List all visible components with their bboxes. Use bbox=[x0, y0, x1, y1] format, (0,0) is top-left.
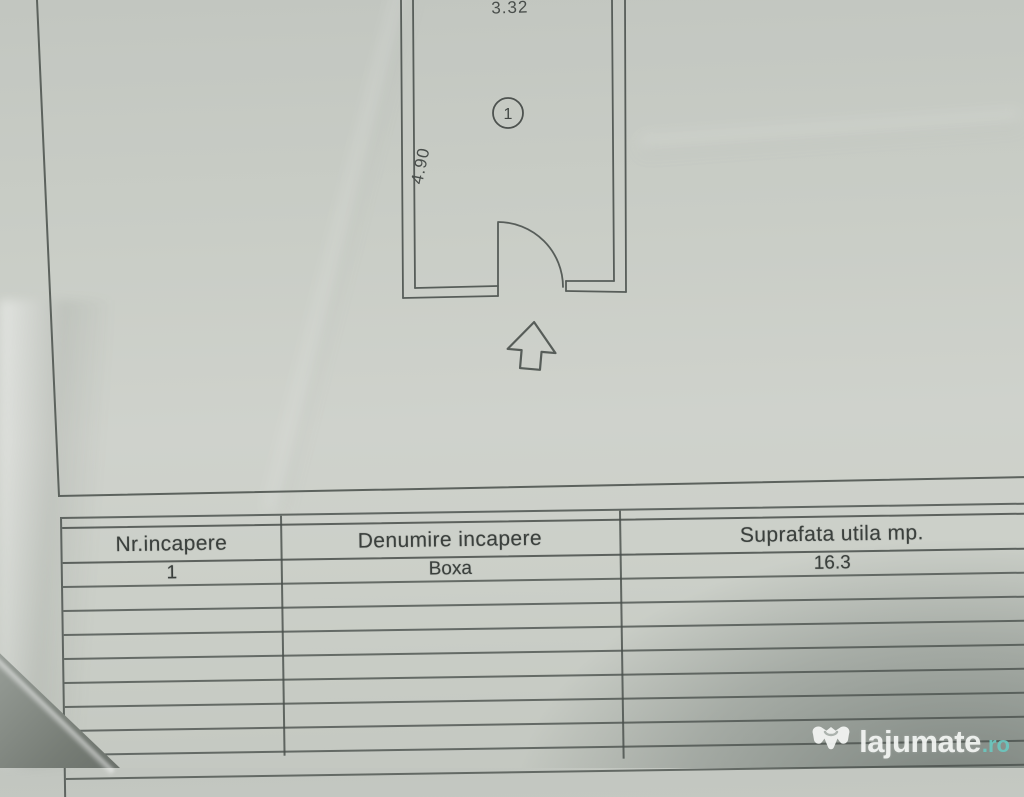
wall-bottom-right-outer bbox=[566, 291, 626, 292]
lajumate-logo-icon bbox=[810, 725, 852, 759]
header-suprafata-utila: Suprafata utila mp. bbox=[619, 519, 1024, 549]
watermark-tld-text: .ro bbox=[982, 732, 1010, 757]
dimension-left-label: 4.90 bbox=[407, 146, 433, 186]
wall-left-outer bbox=[401, 0, 403, 298]
wall-left-inner bbox=[413, 0, 415, 288]
cell-room-number: 1 bbox=[63, 561, 281, 586]
header-denumire-incapere: Denumire incapere bbox=[280, 525, 619, 554]
wall-bottom-left-outer bbox=[403, 296, 498, 298]
header-nr-incapere: Nr.incapere bbox=[62, 530, 280, 557]
entrance-arrow-icon bbox=[506, 320, 558, 371]
room-number-label: 1 bbox=[504, 106, 513, 123]
dimension-top-label: 3.32 bbox=[491, 0, 529, 18]
room-outline bbox=[401, 0, 626, 298]
watermark-brand-text: lajumate bbox=[859, 724, 981, 759]
wall-bottom-left-inner bbox=[415, 286, 498, 288]
wall-right-inner bbox=[612, 0, 614, 281]
photographed-floor-plan-document: { "plan": { "dim_top": "3.32", "dim_left… bbox=[0, 0, 1024, 768]
cell-room-name: Boxa bbox=[281, 556, 620, 583]
wall-right-outer bbox=[625, 0, 626, 292]
site-watermark: lajumate.ro bbox=[810, 724, 1010, 760]
sheet-frame-line bbox=[37, 0, 1024, 496]
door-swing-arc bbox=[498, 222, 563, 287]
